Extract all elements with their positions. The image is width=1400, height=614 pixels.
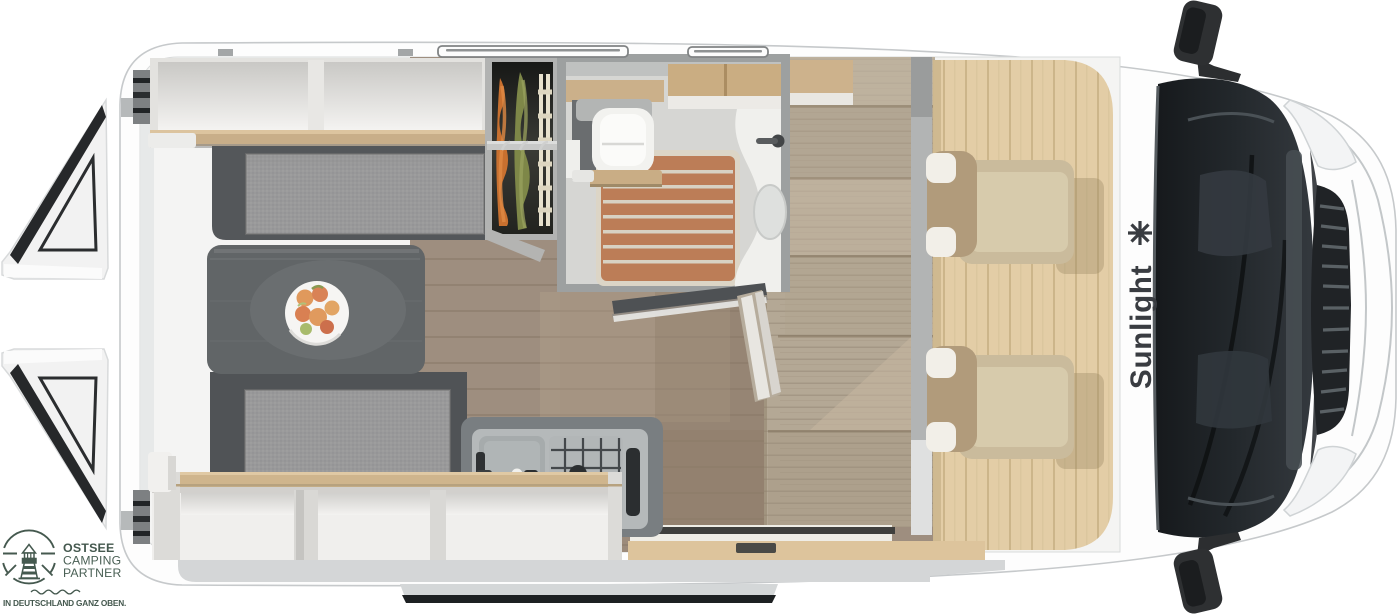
svg-text:Sunlight: Sunlight — [1125, 265, 1158, 389]
svg-text:IN DEUTSCHLAND GANZ OBEN.: IN DEUTSCHLAND GANZ OBEN. — [3, 598, 126, 608]
svg-text:PARTNER: PARTNER — [63, 566, 122, 580]
